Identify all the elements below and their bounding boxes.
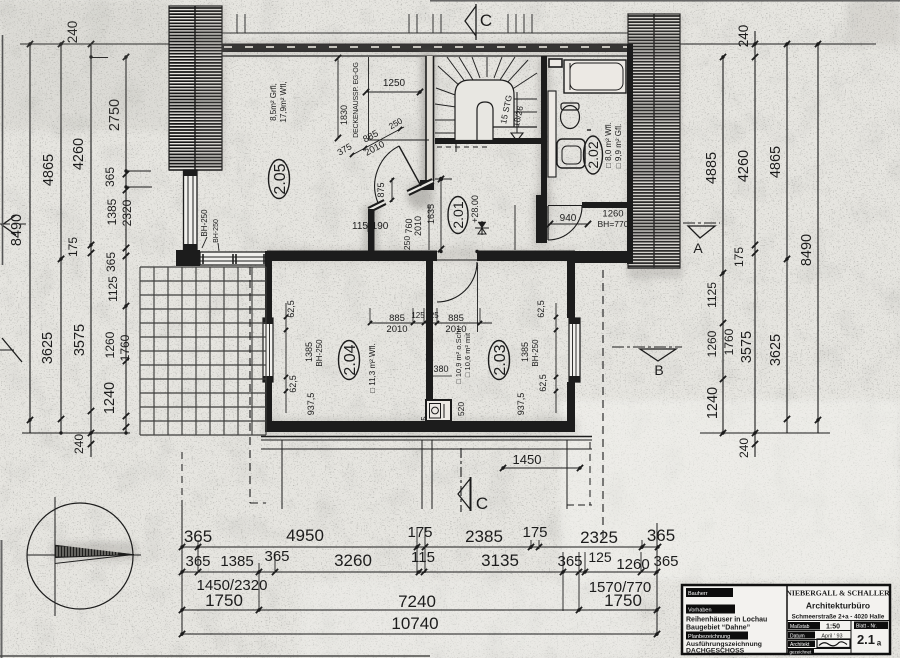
svg-text:BH-250: BH-250 [200,209,209,237]
svg-text:A: A [693,240,703,256]
svg-text:□ 9,9 m² Gfl.: □ 9,9 m² Gfl. [614,124,623,168]
svg-text:DACHGESCHOSS: DACHGESCHOSS [686,648,745,655]
svg-text:17,9m² Wfl,: 17,9m² Wfl, [279,82,288,123]
svg-text:240: 240 [736,25,751,48]
svg-text:1240: 1240 [102,382,118,414]
svg-text:4260: 4260 [736,150,752,182]
svg-text:3575: 3575 [739,331,755,363]
svg-text:250: 250 [402,236,412,250]
svg-text:BH-250: BH-250 [213,219,220,243]
svg-text:8,5m² Grfl,: 8,5m² Grfl, [269,83,278,121]
svg-text:1750: 1750 [604,591,642,610]
svg-text:1260: 1260 [602,209,623,220]
svg-text:Schmeerstraße 2+a - 4020 Halle: Schmeerstraße 2+a - 4020 Halle [792,614,885,621]
svg-text:365: 365 [103,167,117,187]
svg-text:1760: 1760 [118,334,132,361]
svg-text:125: 125 [420,416,429,430]
svg-text:1385: 1385 [105,198,119,225]
svg-text:2385: 2385 [465,527,503,546]
svg-text:1385: 1385 [520,342,530,362]
svg-text:62,5: 62,5 [536,300,546,318]
svg-text:62,5: 62,5 [286,300,296,318]
svg-text:62,5: 62,5 [288,375,298,393]
svg-text:2.01: 2.01 [450,201,466,228]
svg-text:1830: 1830 [339,105,349,125]
svg-text:240: 240 [737,438,751,458]
svg-text:1260: 1260 [616,556,649,573]
svg-text:1450: 1450 [513,452,542,467]
svg-text:365: 365 [264,548,289,565]
svg-text:175: 175 [407,524,432,541]
svg-text:1125: 1125 [106,276,120,302]
svg-text:DECKENAUSSP. EG-OG: DECKENAUSSP. EG-OG [353,62,360,138]
svg-text:115: 115 [411,549,435,566]
svg-text:885: 885 [448,313,464,324]
svg-text:2.1: 2.1 [857,632,875,647]
svg-text:3260: 3260 [334,551,372,570]
svg-text:885: 885 [389,313,405,324]
svg-text:Baugebiet “Dahne”: Baugebiet “Dahne” [686,625,750,632]
svg-text:365: 365 [104,252,118,272]
svg-text:10740: 10740 [391,614,438,633]
svg-text:1260: 1260 [103,331,117,358]
svg-text:62,5: 62,5 [538,374,548,392]
svg-text:175: 175 [66,237,80,257]
svg-text:Planbezeichnung: Planbezeichnung [688,634,730,640]
svg-text:1:50: 1:50 [826,624,840,631]
svg-text:175: 175 [732,247,746,267]
svg-text:3575: 3575 [72,324,88,356]
svg-text:3625: 3625 [40,332,56,364]
svg-text:□ 10,6 m² mit: □ 10,6 m² mit [463,332,472,377]
svg-text:2.05: 2.05 [272,163,289,194]
svg-text:B: B [654,362,663,378]
svg-text:BH-250: BH-250 [531,339,540,367]
svg-text:□ 8,0 m² Wfl.: □ 8,0 m² Wfl. [604,122,613,168]
svg-text:Reihenhäuser in Lochau: Reihenhäuser in Lochau [686,617,767,624]
svg-text:1240: 1240 [705,387,721,419]
svg-text:4950: 4950 [286,526,324,545]
svg-text:125: 125 [411,311,425,320]
svg-text:1250: 1250 [383,78,406,89]
svg-text:175: 175 [522,524,547,541]
svg-text:gezeichnet: gezeichnet [790,650,813,655]
svg-text:937,5: 937,5 [306,393,316,416]
svg-text:Bauherr: Bauherr [688,591,708,597]
svg-text:1260: 1260 [705,330,719,357]
svg-text:Architekturbüro: Architekturbüro [806,601,870,611]
svg-text:4885: 4885 [704,152,720,184]
svg-text:a: a [877,639,882,648]
svg-text:C: C [480,11,492,30]
svg-text:2.04: 2.04 [342,344,359,375]
svg-text:1635: 1635 [426,204,436,224]
svg-text:1125: 1125 [705,282,719,308]
svg-text:BH=770: BH=770 [598,219,629,229]
svg-text:2320: 2320 [120,199,134,226]
svg-text:8490: 8490 [799,234,815,266]
svg-text:Blatt - Nr.: Blatt - Nr. [856,624,877,630]
svg-text:7240: 7240 [398,592,436,611]
svg-text:125: 125 [588,549,612,565]
svg-text:Datum: Datum [790,634,805,640]
svg-text:380: 380 [433,364,448,374]
svg-text:2.03: 2.03 [492,344,509,375]
svg-text:2010: 2010 [445,324,466,335]
svg-text:940: 940 [560,213,577,224]
svg-text:4865: 4865 [768,146,784,178]
svg-text:240: 240 [72,434,86,454]
svg-text:1750: 1750 [205,591,243,610]
svg-text:4865: 4865 [41,154,57,186]
svg-text:1760: 1760 [722,328,736,355]
svg-text:BH-250: BH-250 [315,339,324,367]
svg-text:3625: 3625 [768,334,784,366]
svg-text:C: C [476,494,488,513]
svg-text:Maßstab: Maßstab [790,624,810,630]
svg-text:520: 520 [456,402,466,416]
svg-text:365: 365 [647,526,675,545]
svg-text:2010: 2010 [413,216,423,236]
svg-text:115: 115 [352,221,368,232]
svg-text:2.02: 2.02 [585,141,601,168]
svg-text:1385: 1385 [304,342,314,362]
svg-text:2325: 2325 [580,528,618,547]
svg-text:4260: 4260 [71,138,87,170]
svg-text:875: 875 [376,182,386,197]
svg-text:1385: 1385 [220,553,253,570]
svg-text:3135: 3135 [481,551,519,570]
svg-text:Architekt: Architekt [790,642,810,648]
svg-text:Vorhaben: Vorhaben [688,608,712,614]
svg-text:2010: 2010 [386,324,407,335]
svg-text:+28.00: +28.00 [470,195,480,223]
svg-text:937,5: 937,5 [516,393,526,416]
svg-text:□ 11,3 m² Wfl.: □ 11,3 m² Wfl. [368,343,377,393]
svg-text:125: 125 [425,311,439,320]
svg-text:NIEBERGALL & SCHALLER: NIEBERGALL & SCHALLER [786,589,890,598]
